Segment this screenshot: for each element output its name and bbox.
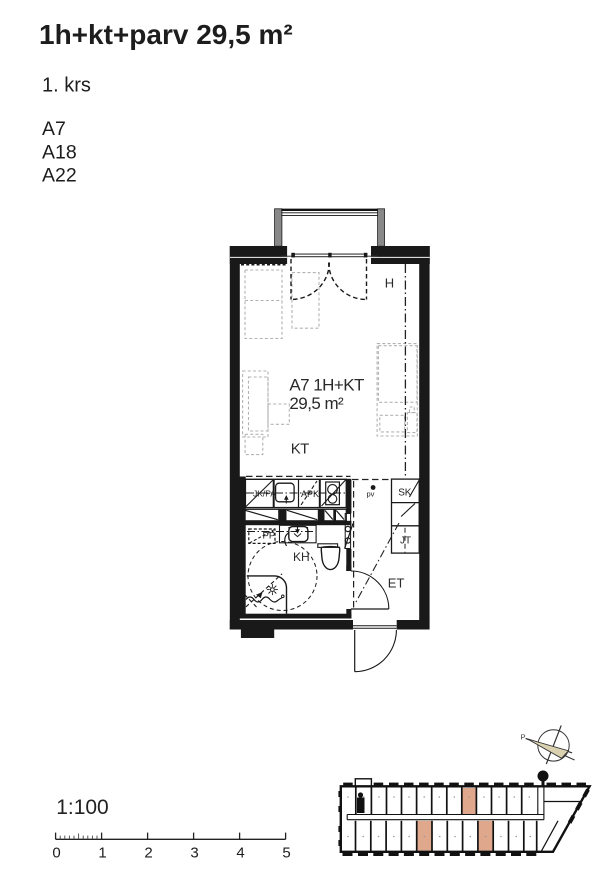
svg-text:29,5 m²: 29,5 m² [289, 394, 344, 413]
svg-text:JK/PA: JK/PA [253, 489, 276, 499]
svg-text:1: 1 [98, 845, 106, 862]
svg-text:KH: KH [293, 550, 310, 564]
svg-text:2: 2 [144, 845, 152, 862]
svg-text:3: 3 [190, 845, 198, 862]
svg-text:0: 0 [52, 845, 60, 862]
svg-text:A7: A7 [42, 118, 66, 140]
svg-text:A7 1H+KT: A7 1H+KT [289, 376, 364, 395]
svg-text:4: 4 [236, 845, 244, 862]
svg-text:H: H [385, 276, 394, 291]
svg-text:5: 5 [282, 845, 290, 862]
svg-text:ET: ET [388, 576, 405, 591]
svg-text:APK: APK [301, 489, 319, 499]
svg-text:1h+kt+parv 29,5 m²: 1h+kt+parv 29,5 m² [39, 19, 293, 50]
svg-text:1:100: 1:100 [56, 796, 109, 819]
svg-text:JT: JT [400, 536, 411, 547]
svg-text:1. krs: 1. krs [42, 75, 91, 97]
svg-text:P: P [521, 733, 526, 742]
svg-text:pv: pv [367, 490, 375, 499]
svg-text:SK: SK [398, 487, 411, 498]
svg-text:KT: KT [291, 441, 309, 458]
svg-text:A22: A22 [42, 165, 77, 187]
svg-text:A18: A18 [42, 141, 77, 163]
svg-text:PP: PP [263, 531, 276, 542]
